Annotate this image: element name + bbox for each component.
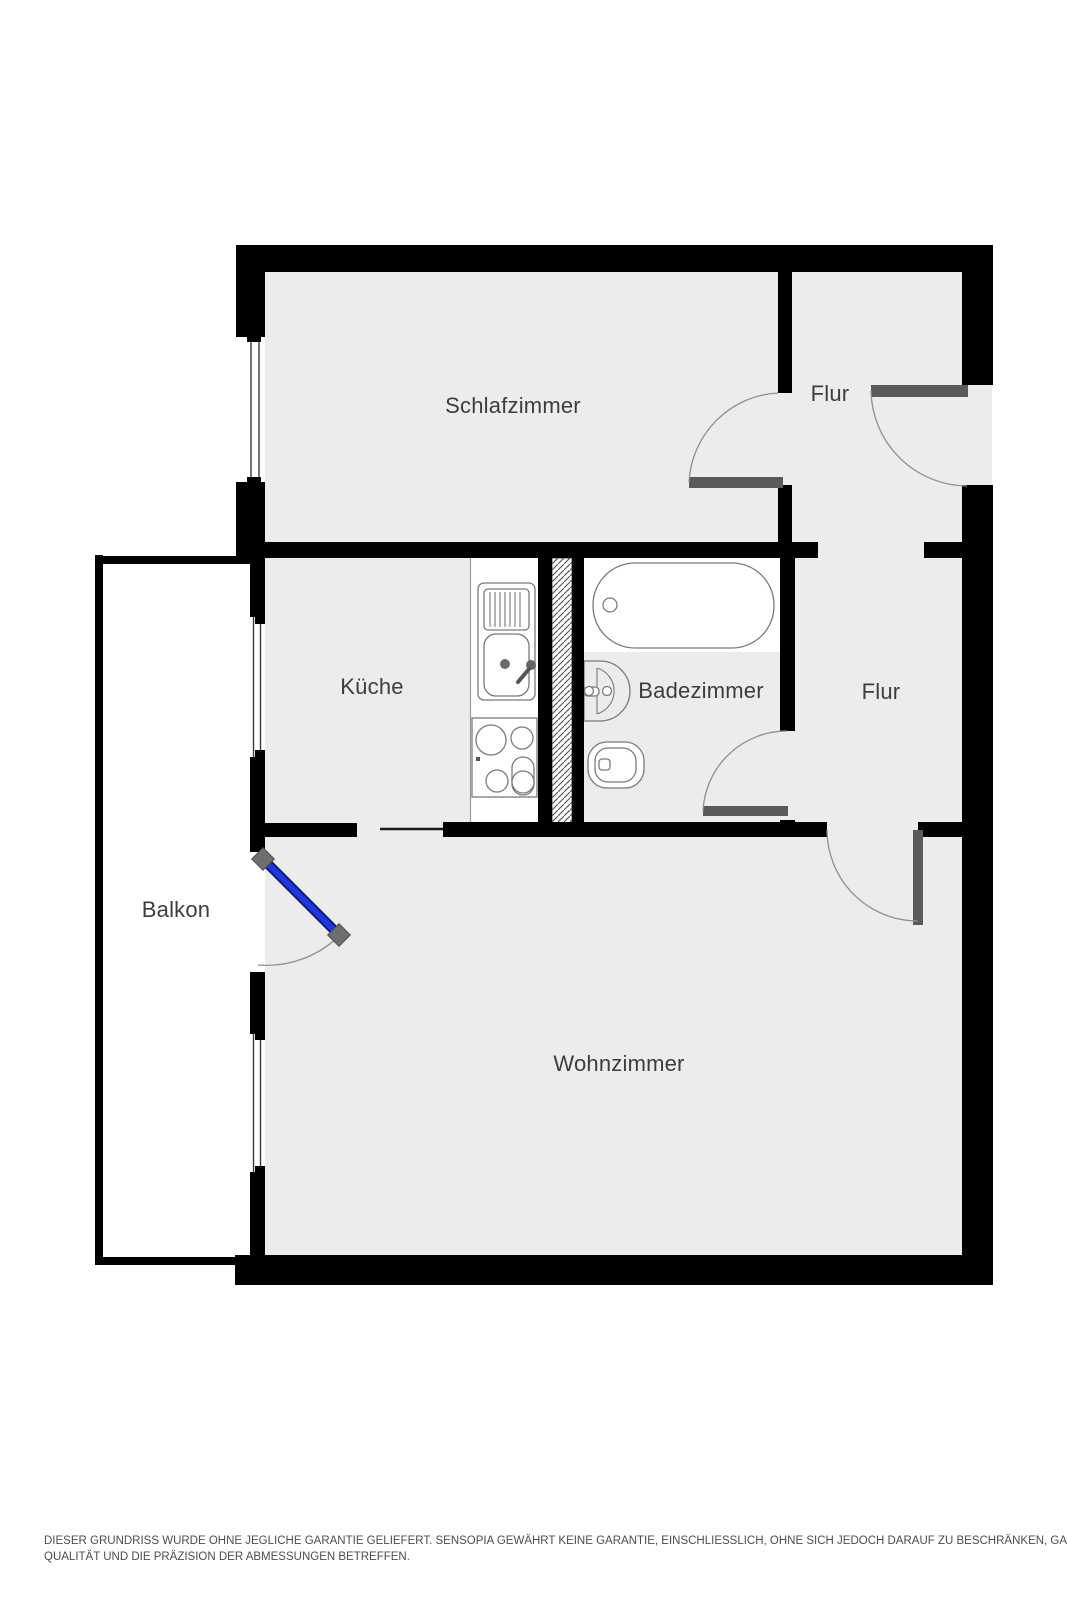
wall-segment [918, 822, 962, 837]
room-label-schlafzimmer: Schlafzimmer [445, 393, 581, 419]
ventilation-shaft [552, 558, 572, 823]
wall-segment [236, 245, 993, 272]
room-label-flur-top: Flur [811, 381, 850, 407]
sink-drain [500, 659, 510, 669]
kitchen-sink-unit [478, 583, 536, 700]
room-label-flur-right: Flur [862, 679, 901, 705]
bathtub [593, 563, 774, 648]
wall-segment [250, 972, 265, 1034]
wall-segment [250, 542, 265, 617]
disclaimer-line-2: QUALITÄT UND DIE PRÄZISION DER ABMESSUNG… [44, 1549, 1067, 1565]
wall-segment [778, 485, 792, 542]
room-label-balkon: Balkon [142, 897, 210, 923]
wall-segment [962, 485, 993, 1285]
wall-segment [250, 757, 265, 852]
room-label-kueche: Küche [340, 674, 403, 700]
wall-segment [250, 1172, 265, 1255]
wall-segment [924, 542, 962, 558]
window-bedroom [236, 337, 265, 482]
toilet [588, 742, 644, 788]
window-kitchen [250, 617, 265, 757]
disclaimer-line-1: DIESER GRUNDRISS WURDE OHNE JEGLICHE GAR… [44, 1533, 1067, 1549]
wall-segment [265, 542, 818, 558]
wall-segment [235, 1255, 993, 1285]
cooktop [472, 718, 537, 797]
wall-segment [780, 558, 795, 731]
wall-segment [778, 272, 792, 393]
window-livingroom [250, 1034, 265, 1172]
room-label-wohnzimmer: Wohnzimmer [553, 1051, 684, 1077]
balcony-wall [95, 555, 103, 1265]
wall-segment [262, 823, 357, 837]
floorplan-canvas [0, 0, 1067, 1600]
entrance-doorway-floor [962, 385, 992, 485]
wall-segment [538, 558, 552, 823]
balcony-wall [95, 556, 250, 564]
wall-segment [236, 245, 265, 337]
wall-segment [572, 558, 584, 823]
wall-segment [443, 822, 827, 837]
room-label-badezimmer: Badezimmer [638, 678, 763, 704]
balcony-wall [95, 1257, 237, 1265]
wall-segment [962, 245, 993, 385]
disclaimer-text: DIESER GRUNDRISS WURDE OHNE JEGLICHE GAR… [44, 1533, 1067, 1565]
floorplan-page: { "rooms": { "schlafzimmer": "Schlafzimm… [0, 0, 1067, 1600]
